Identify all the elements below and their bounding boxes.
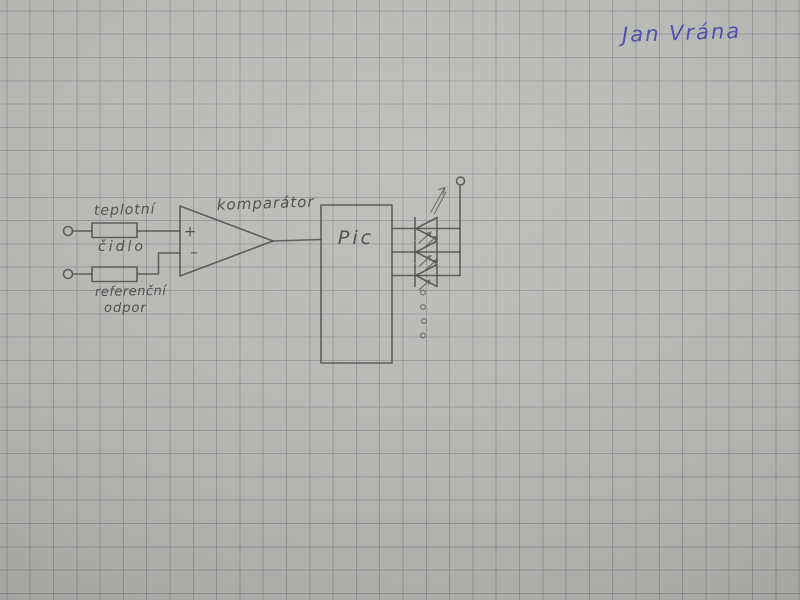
temp-sensor-resistor: [92, 223, 137, 238]
circuit-sketch: + –: [0, 0, 800, 600]
temp-sensor-label-top: teplotní: [94, 201, 157, 219]
big-emission-arrow-icon: [431, 188, 446, 214]
led-1-emission-arrows-icon: [419, 232, 437, 246]
input-terminal-top-icon: [64, 227, 73, 236]
pic-label: Pic: [338, 227, 374, 249]
graph-paper: + –: [0, 0, 800, 600]
temp-sensor-label-bottom: čidlo: [98, 239, 146, 255]
led-branch-wires: [392, 229, 460, 276]
continuation-dots-icon: [421, 290, 427, 338]
led-3-emission-arrow-icon: [419, 280, 430, 290]
wire-comparator-to-pic: [273, 240, 321, 242]
rail-terminal-icon: [457, 177, 465, 185]
led-1-icon: [415, 218, 437, 247]
led-2-emission-arrows-icon: [419, 256, 437, 270]
comparator-label: komparátor: [217, 193, 315, 214]
reference-resistor: [92, 267, 137, 282]
comparator-plus-sign: +: [184, 223, 197, 241]
wire-reference-to-comparator: [73, 253, 181, 274]
comparator-minus-sign: –: [190, 243, 198, 261]
reference-resistor-label-top: referenční: [95, 284, 169, 300]
input-terminal-bottom-icon: [64, 270, 73, 279]
comparator-triangle: [180, 206, 273, 276]
reference-resistor-label-bottom: odpor: [104, 301, 147, 316]
led-3-icon: [415, 265, 437, 291]
